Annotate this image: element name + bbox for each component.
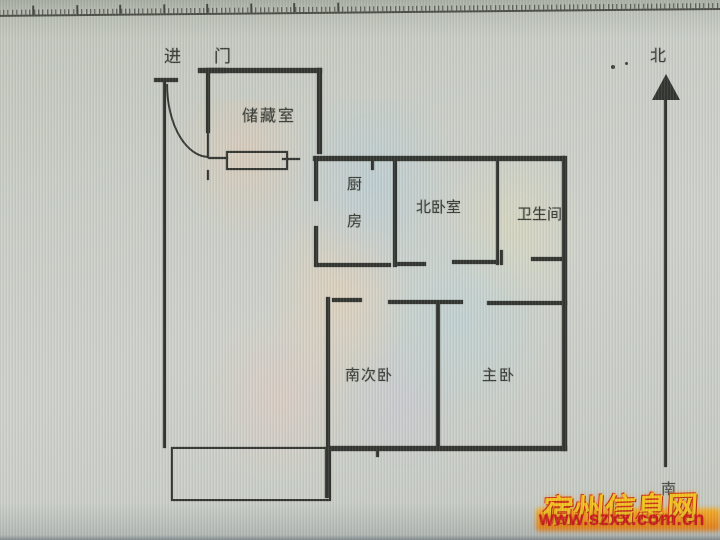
outer-left-wall <box>163 80 166 448</box>
entry-door-arc <box>166 84 209 158</box>
bathroom-west-wall <box>496 157 499 265</box>
floor-plan: 进门储藏室厨房北卧室卫生间南次卧主卧北南 <box>0 0 720 540</box>
compass-north-label: 北 <box>650 42 666 66</box>
north-bedroom-label: 北卧室 <box>416 196 461 217</box>
kitchen-west-wall-lower <box>314 226 318 267</box>
master-bedroom-label: 主卧 <box>482 364 516 385</box>
storage-window <box>226 151 288 170</box>
kitchen-west-wall-upper <box>314 161 318 201</box>
floor-plan-photo: 50100150200250300350400 进门储藏室厨房北卧室卫生间南次卧… <box>0 0 720 540</box>
bedroom-divider-wall <box>436 301 440 448</box>
balcony <box>171 447 331 501</box>
north-bedroom-south-wall-left <box>396 262 426 266</box>
south-wall-tick <box>376 450 379 457</box>
north-bedroom-south-wall-right <box>452 260 499 264</box>
outer-south-wall <box>329 446 567 451</box>
south-bedroom-label: 南次卧 <box>345 364 393 385</box>
storage-north-wall <box>206 68 322 73</box>
watermark-url: www.szxx.com.cn <box>539 509 705 531</box>
north-arrow-head <box>652 74 680 100</box>
storage-window-midline <box>282 158 300 160</box>
outer-left-wall-cap <box>154 78 178 82</box>
north-arrow-stem <box>664 98 667 467</box>
bathroom-south-wall <box>531 257 565 261</box>
storage-south-ledge <box>208 157 228 159</box>
storage-room-label: 储藏室 <box>242 102 296 126</box>
photo-bottom-edge <box>0 535 720 540</box>
balcony-east-wall <box>325 447 330 498</box>
entry-label: 进门 <box>164 42 264 67</box>
kitchen-label: 厨房 <box>343 176 364 250</box>
entry-door-leaf <box>206 71 210 133</box>
wall-paint-mark <box>207 170 209 180</box>
entry-door-leaf-lower <box>207 133 209 158</box>
bathroom-door-jamb <box>500 250 503 265</box>
speck-dot-2 <box>625 62 628 65</box>
speck-dot-1 <box>611 65 615 69</box>
master-bedroom-north-wall <box>487 301 567 305</box>
kitchen-bedroom-divider <box>393 158 397 267</box>
north-wall-tick <box>371 161 374 170</box>
south-bedroom-north-wall-left <box>332 298 362 302</box>
south-bedroom-west-wall <box>326 297 330 448</box>
kitchen-south-wall <box>316 263 391 267</box>
storage-east-wall <box>317 68 322 154</box>
north-wall <box>313 156 565 161</box>
south-bedroom-north-wall-right <box>388 300 463 304</box>
bathroom-label: 卫生间 <box>517 203 562 224</box>
